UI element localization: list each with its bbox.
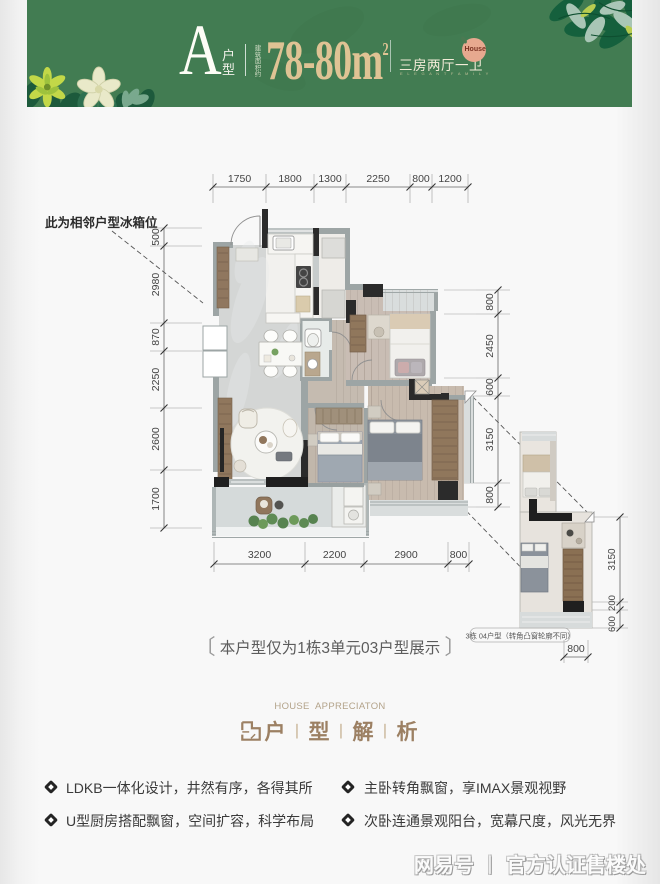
svg-text:800: 800: [484, 293, 496, 311]
svg-text:1700: 1700: [150, 487, 162, 511]
svg-text:2980: 2980: [150, 273, 162, 297]
svg-text:3200: 3200: [248, 549, 272, 561]
svg-text:2250: 2250: [150, 368, 162, 392]
svg-text:3150: 3150: [484, 428, 496, 452]
svg-text:800: 800: [450, 549, 468, 561]
svg-text:500: 500: [150, 228, 162, 246]
svg-text:2250: 2250: [366, 173, 390, 185]
svg-text:此为相邻户型冰箱位: 此为相邻户型冰箱位: [45, 215, 158, 230]
svg-text:2200: 2200: [323, 549, 347, 561]
svg-text:2900: 2900: [394, 549, 418, 561]
svg-text:870: 870: [150, 328, 162, 346]
svg-text:1200: 1200: [438, 173, 462, 185]
svg-text:1800: 1800: [278, 173, 302, 185]
svg-text:3150: 3150: [607, 548, 618, 571]
svg-text:800: 800: [484, 486, 496, 504]
svg-text:1300: 1300: [318, 173, 342, 185]
svg-text:2450: 2450: [484, 334, 496, 358]
svg-text:800: 800: [412, 173, 430, 185]
svg-text:2600: 2600: [150, 427, 162, 451]
svg-text:200: 200: [607, 595, 618, 611]
svg-text:600: 600: [484, 378, 496, 396]
svg-text:1750: 1750: [228, 173, 252, 185]
